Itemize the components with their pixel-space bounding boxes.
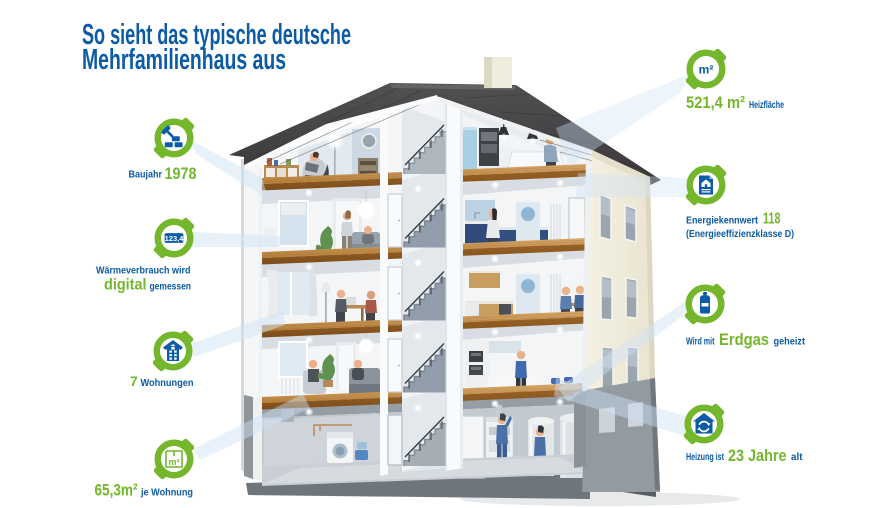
svg-text:1978: 1978	[165, 165, 197, 183]
svg-text:23 Jahre: 23 Jahre	[728, 447, 787, 465]
svg-text:je Wohnung: je Wohnung	[140, 487, 193, 499]
svg-text:123,4: 123,4	[165, 234, 185, 243]
svg-text:65,3m²: 65,3m²	[95, 482, 138, 500]
svg-text:m²: m²	[699, 63, 714, 77]
svg-text:gemessen: gemessen	[150, 281, 192, 293]
svg-text:Heizfläche: Heizfläche	[749, 99, 784, 111]
svg-text:Wärmeverbrauch wird: Wärmeverbrauch wird	[96, 265, 191, 277]
svg-text:Heizung ist: Heizung ist	[686, 451, 724, 463]
svg-text:118: 118	[763, 211, 781, 228]
svg-text:Mehrfamilienhaus aus: Mehrfamilienhaus aus	[82, 44, 286, 76]
svg-text:Erdgas: Erdgas	[719, 331, 769, 349]
svg-text:Baujahr: Baujahr	[129, 169, 163, 181]
svg-text:alt: alt	[791, 451, 803, 463]
svg-text:Wird mit: Wird mit	[686, 336, 715, 348]
svg-text:521,4 m²: 521,4 m²	[686, 94, 745, 112]
svg-text:digital: digital	[104, 277, 147, 294]
svg-text:7: 7	[130, 373, 138, 389]
svg-text:Energiekennwert: Energiekennwert	[686, 215, 758, 227]
svg-text:(Energieeffizienzklasse D): (Energieeffizienzklasse D)	[686, 228, 794, 240]
svg-text:m²: m²	[169, 457, 180, 467]
svg-text:geheizt: geheizt	[774, 336, 806, 348]
svg-text:Wohnungen: Wohnungen	[141, 377, 194, 389]
